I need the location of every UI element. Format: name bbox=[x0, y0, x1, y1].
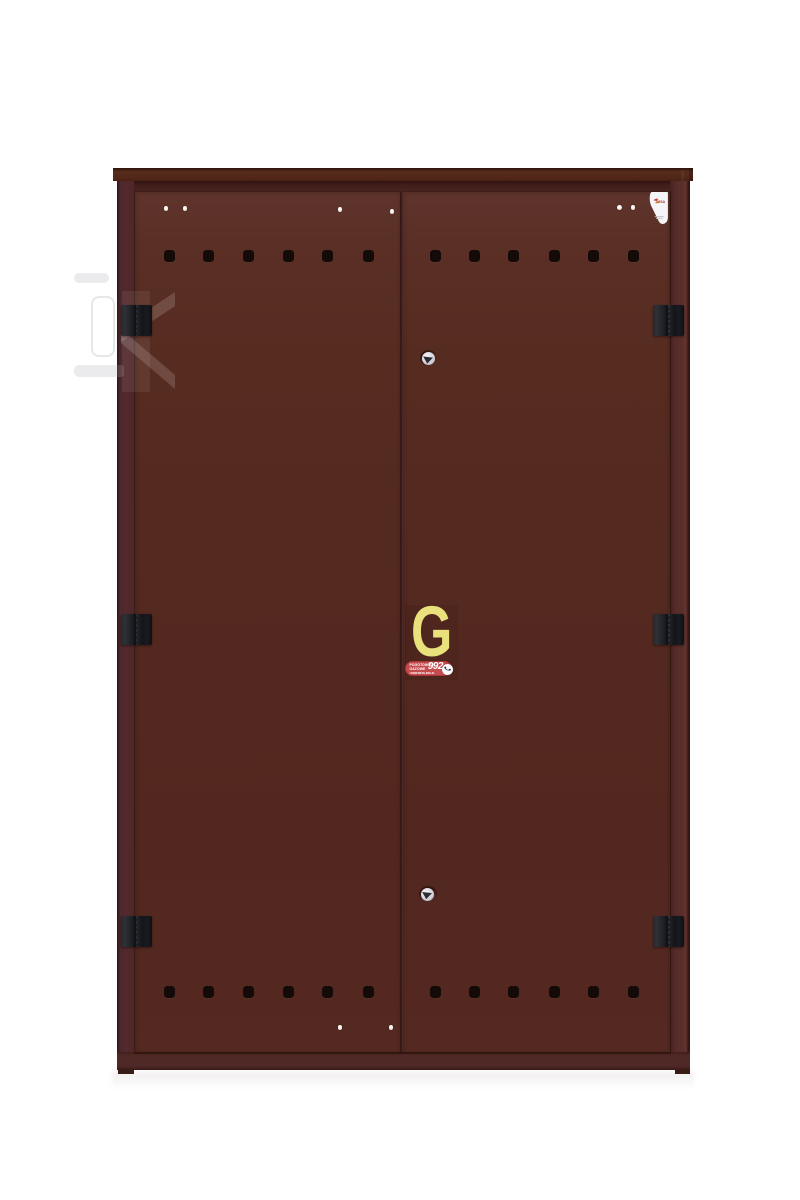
svg-text:WISA: WISA bbox=[656, 199, 665, 203]
